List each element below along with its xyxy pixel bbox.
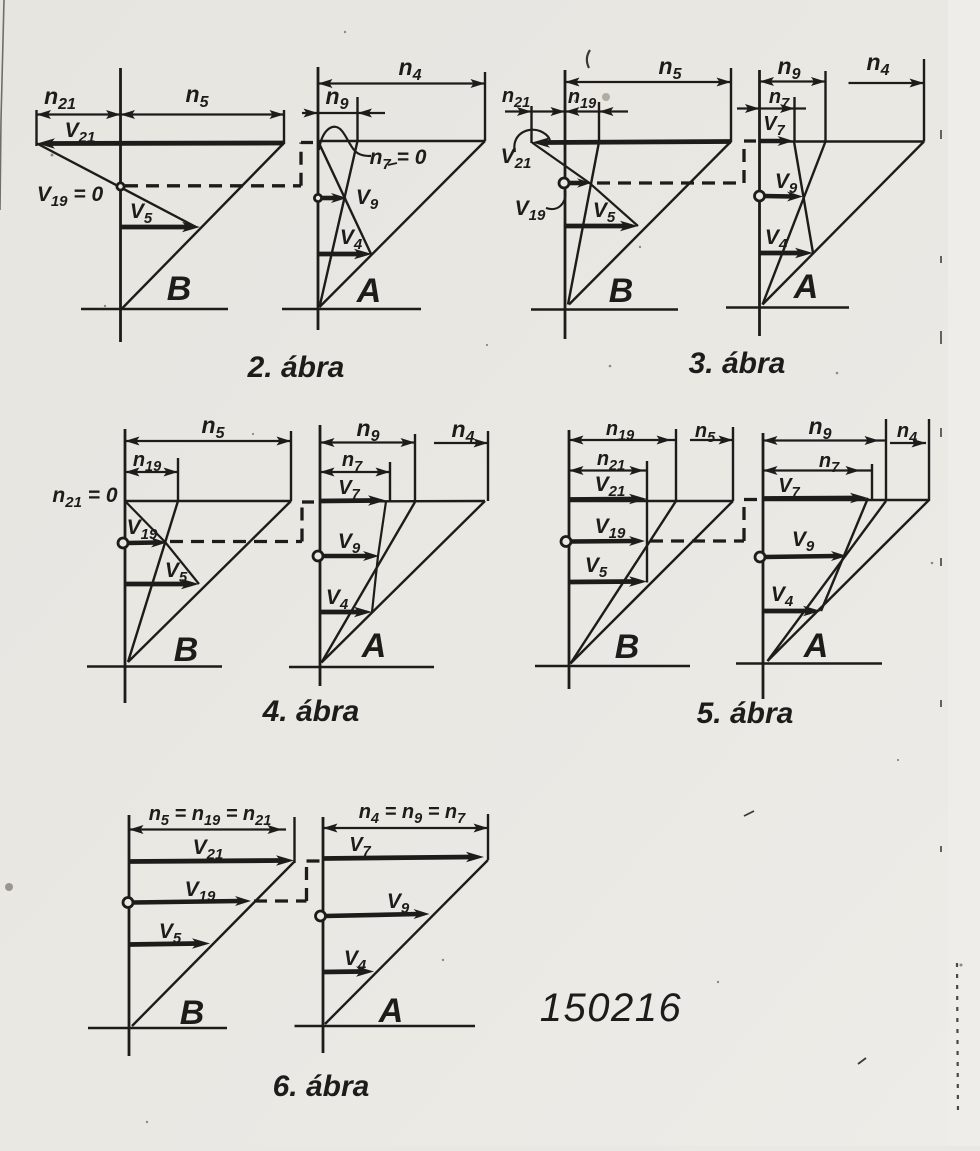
svg-text:5. ábra: 5. ábra — [697, 697, 794, 730]
svg-text:3. ábra: 3. ábra — [689, 347, 786, 380]
svg-text:B: B — [174, 631, 199, 669]
svg-text:B: B — [167, 270, 192, 308]
svg-text:B: B — [609, 272, 634, 310]
svg-text:A: A — [356, 272, 382, 310]
svg-text:n21 = 0: n21 = 0 — [52, 484, 117, 511]
svg-text:150216: 150216 — [540, 986, 682, 1030]
svg-text:A: A — [793, 268, 819, 306]
svg-text:n7 = 0: n7 = 0 — [370, 146, 427, 173]
svg-text:B: B — [615, 628, 640, 666]
svg-text:A: A — [361, 627, 387, 665]
svg-text:A: A — [378, 992, 404, 1030]
svg-text:6. ábra: 6. ábra — [273, 1070, 370, 1103]
svg-text:A: A — [803, 627, 829, 665]
svg-text:B: B — [180, 994, 205, 1032]
svg-text:2. ábra: 2. ábra — [247, 351, 345, 384]
svg-text:4. ábra: 4. ábra — [262, 695, 360, 728]
svg-text:V19 = 0: V19 = 0 — [37, 183, 104, 210]
